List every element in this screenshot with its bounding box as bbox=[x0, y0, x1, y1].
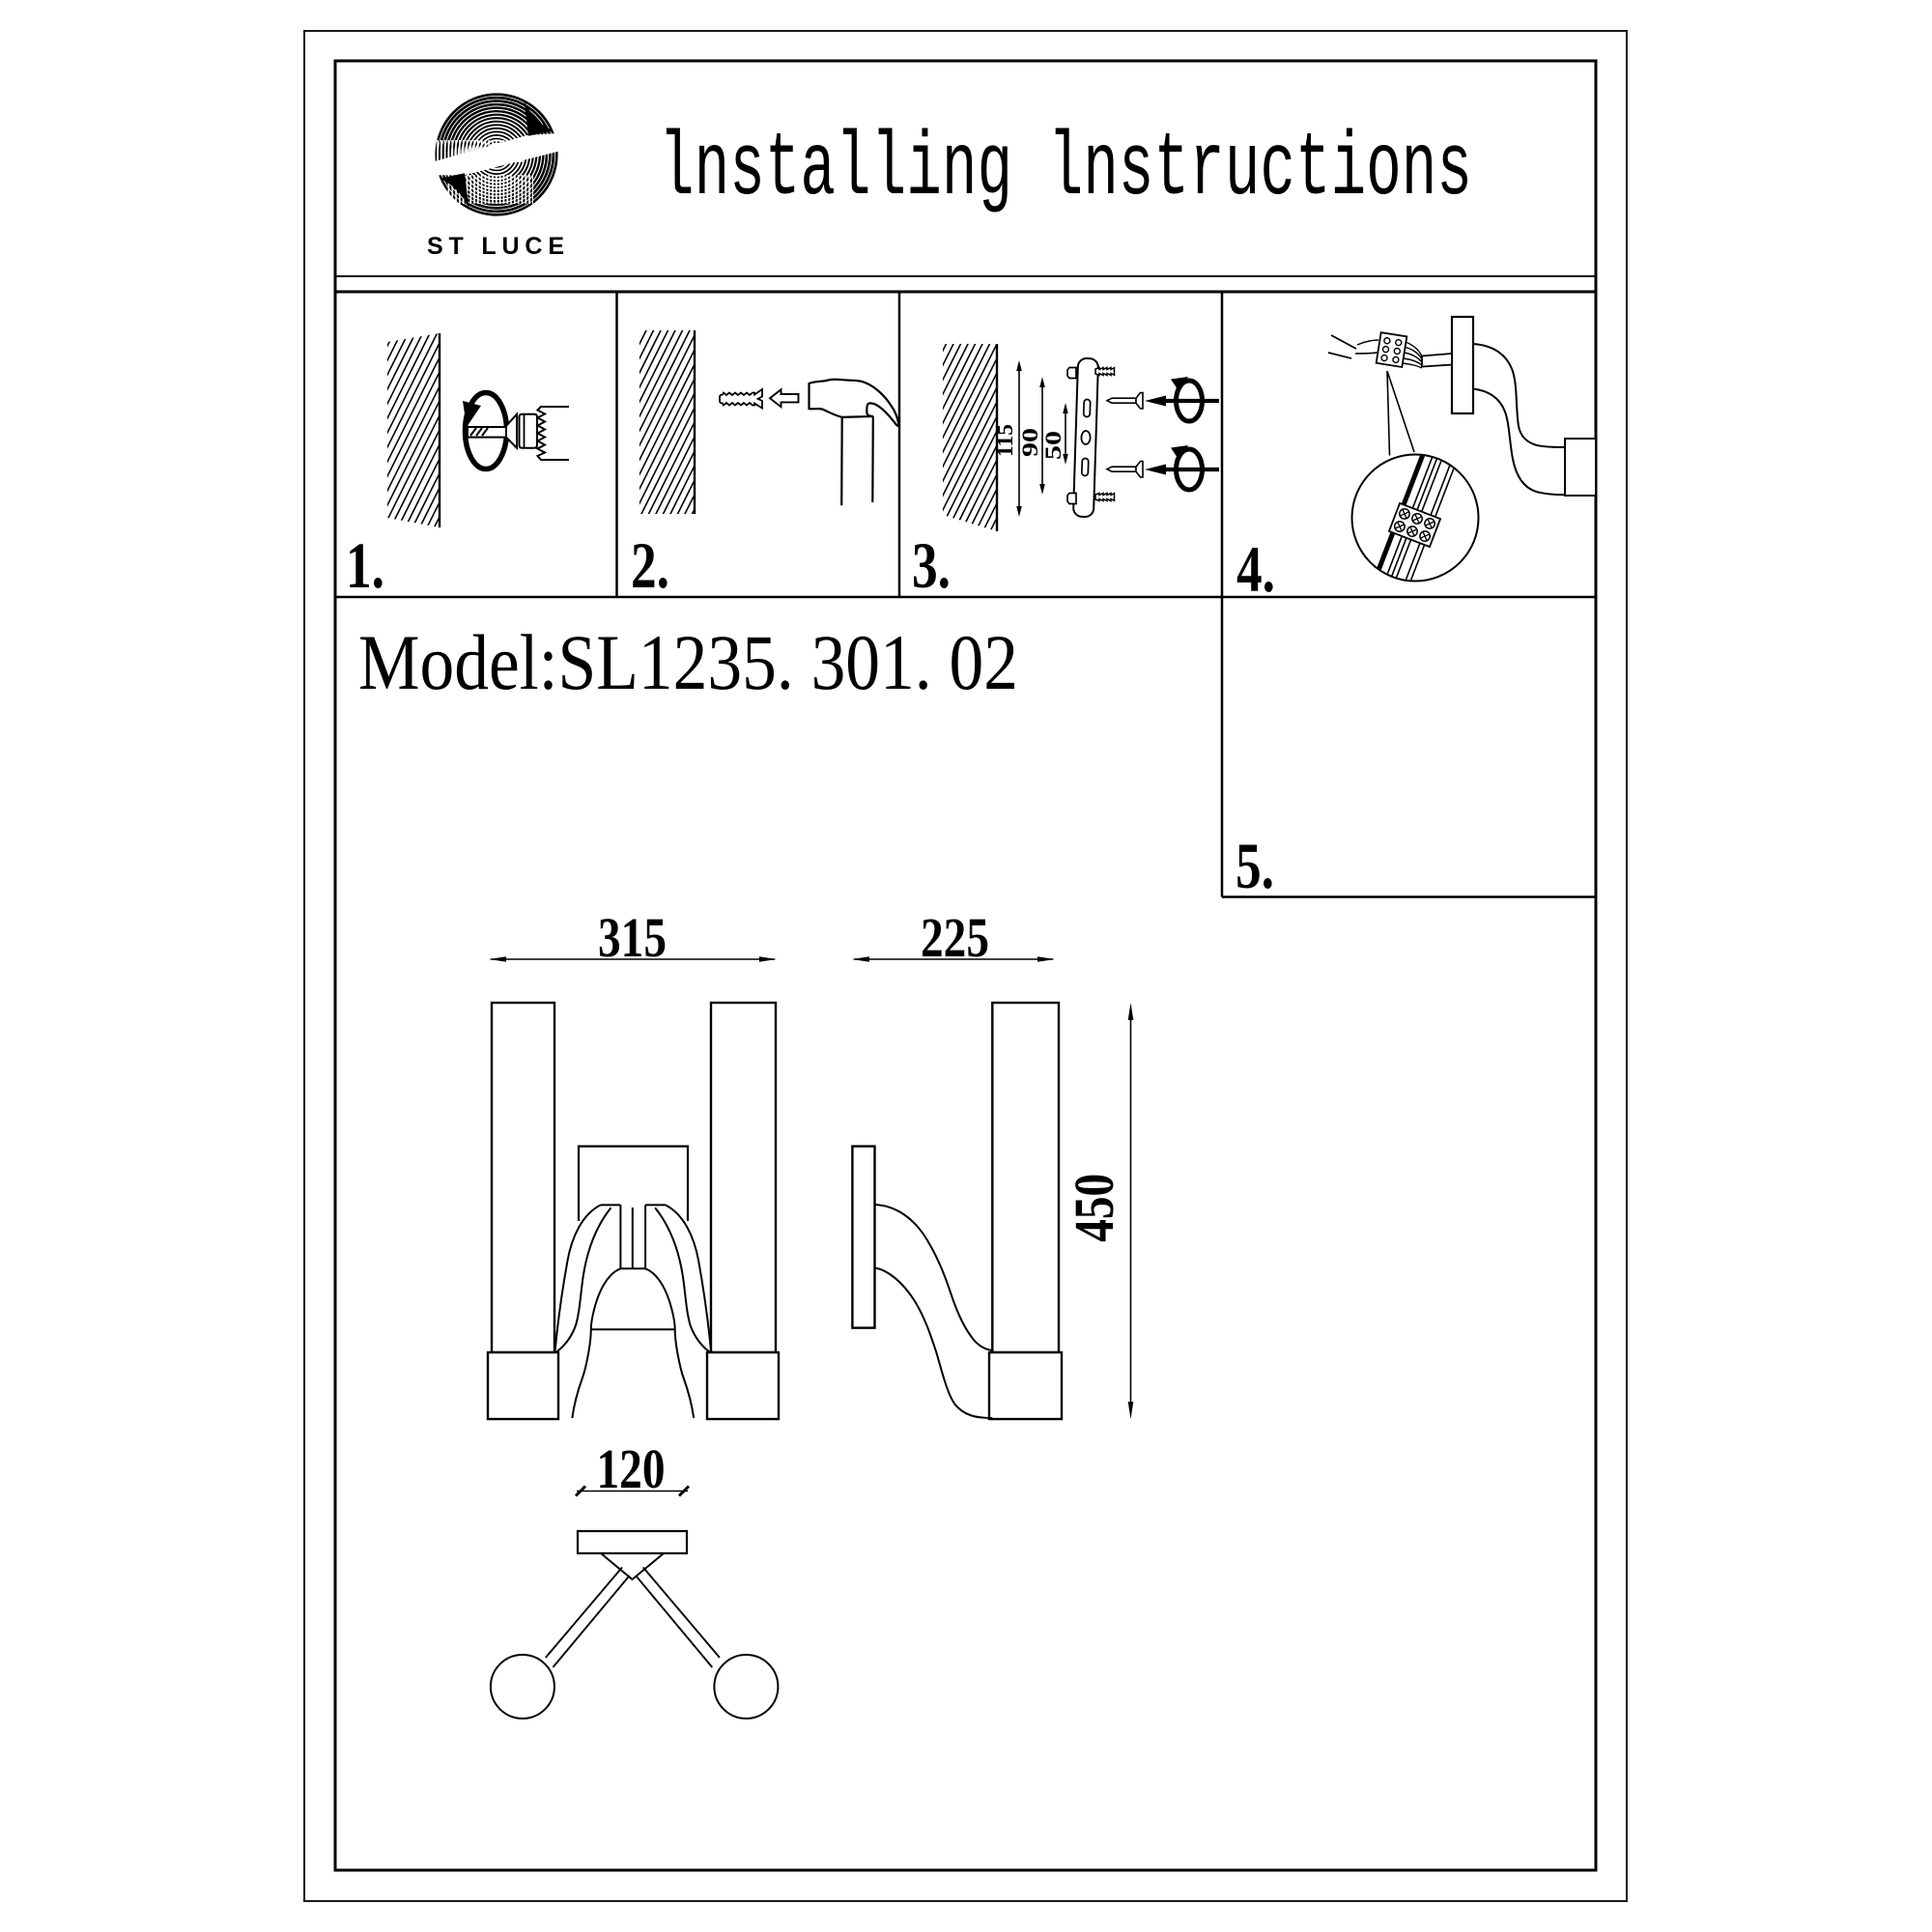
svg-text:5.: 5. bbox=[1236, 829, 1274, 902]
svg-text:450: 450 bbox=[1063, 1174, 1125, 1242]
svg-text:2.: 2. bbox=[631, 528, 669, 602]
svg-text:50: 50 bbox=[1041, 431, 1065, 460]
svg-text:3.: 3. bbox=[912, 528, 951, 602]
svg-text:Model:SL1235. 301. 02: Model:SL1235. 301. 02 bbox=[358, 618, 1018, 706]
svg-text:315: 315 bbox=[598, 906, 667, 969]
svg-text:1.: 1. bbox=[346, 528, 384, 602]
svg-text:120: 120 bbox=[597, 1437, 666, 1500]
svg-text:lnstalling lnstructions: lnstalling lnstructions bbox=[659, 119, 1472, 220]
svg-text:225: 225 bbox=[921, 906, 989, 969]
svg-text:115: 115 bbox=[993, 424, 1017, 457]
svg-text:4.: 4. bbox=[1236, 532, 1275, 606]
svg-text:90: 90 bbox=[1018, 428, 1042, 457]
